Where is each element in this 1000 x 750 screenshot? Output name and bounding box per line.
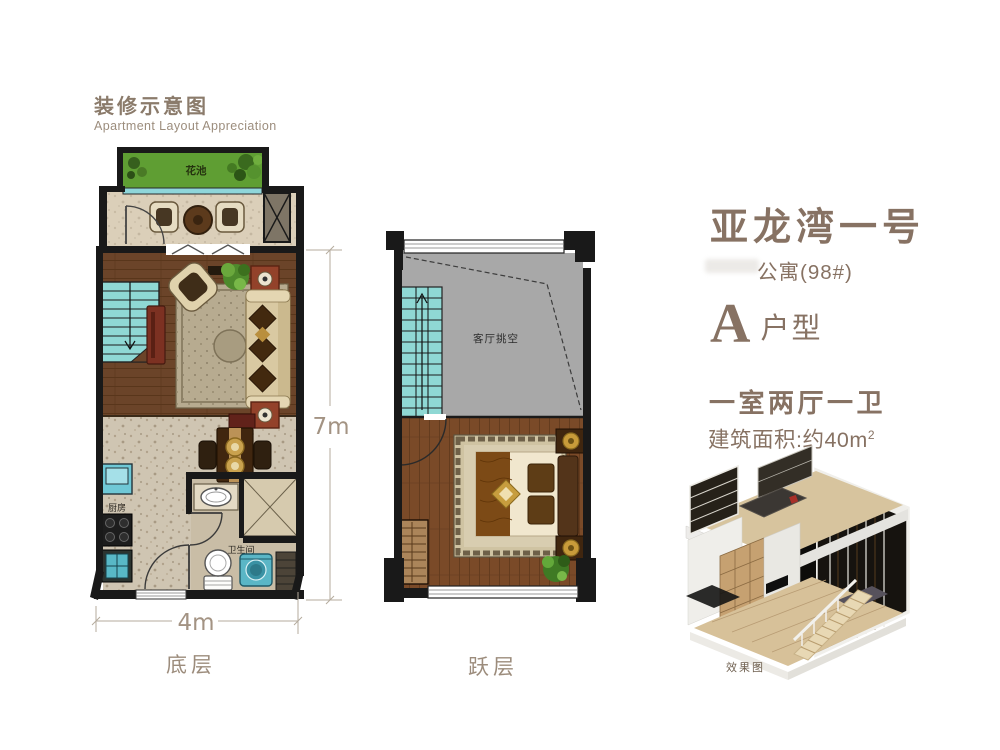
washbasin [194, 484, 238, 510]
terrace-table-center [193, 215, 203, 225]
terrace-chair-right [216, 202, 244, 232]
floorplan-canvas: 厨房 [0, 0, 1000, 750]
area-superscript: 2 [868, 428, 875, 442]
nightstand-top [556, 429, 586, 453]
sideboard [229, 414, 255, 428]
dining-chair-left [199, 441, 216, 469]
bedroom-door-opening [424, 414, 446, 420]
upper-top-window [404, 240, 564, 253]
ground-bottom-window [136, 590, 186, 599]
upper-floor-caption: 跃层 [468, 651, 518, 681]
terrace-chair-left [150, 202, 178, 232]
render-3d [686, 446, 908, 680]
area-description: 建筑面积:约40m2 [708, 423, 875, 454]
unit-suffix: 户型 [760, 305, 822, 347]
render-caption: 效果图 [726, 659, 765, 675]
upper-floor-plan: 客厅挑空 [384, 231, 596, 602]
flower-bed-label: 花池 [186, 164, 207, 177]
shaft-hatched [264, 193, 290, 242]
stove [102, 514, 132, 546]
shower [243, 478, 297, 536]
toilet [204, 550, 232, 590]
kitchen-sink [102, 550, 132, 582]
tv-cabinet-detail [151, 312, 155, 358]
side-table-top [251, 266, 279, 292]
terrace-window-sill [123, 188, 262, 194]
brochure-page: 装修示意图 Apartment Layout Appreciation [0, 0, 1000, 750]
dimension-depth-label: 7m [312, 414, 349, 440]
dining-chair-right [254, 441, 271, 469]
tv-cabinet [147, 306, 165, 364]
layout-description: 一室两厅一卫 [709, 383, 886, 420]
upper-bottom-window [428, 586, 578, 598]
unit-letter: A [710, 296, 750, 352]
void-label: 客厅挑空 [473, 332, 519, 345]
kitchen-label: 厨房 [108, 502, 126, 514]
bed [476, 452, 562, 536]
washing-machine [240, 554, 272, 586]
kitchen-counter [102, 464, 132, 494]
ground-floor-plan: 厨房 [90, 147, 304, 600]
project-title: 亚龙湾一号 [710, 196, 925, 251]
upper-stairs [400, 287, 442, 417]
faded-text-smudge [705, 259, 759, 273]
headboard [558, 456, 578, 536]
sofa [246, 290, 290, 408]
area-text: 建筑面积:约40m [708, 428, 868, 452]
ground-floor-caption: 底层 [166, 649, 216, 679]
dimension-width-label: 4m [177, 610, 214, 636]
building-label: 公寓(98#) [757, 255, 853, 285]
unit-type: A 户型 [710, 296, 822, 352]
